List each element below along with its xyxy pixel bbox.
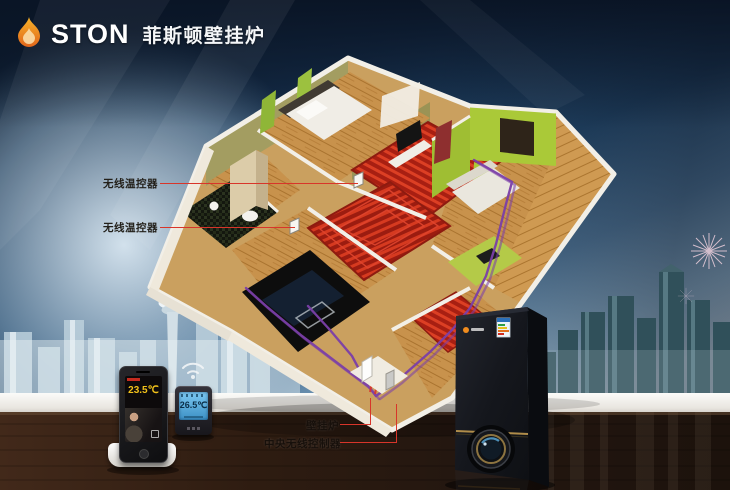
leader-line-3v [370, 398, 371, 425]
flame-icon [14, 16, 44, 52]
phone-app-logo [127, 378, 140, 381]
label-wireless-thermostat-1: 无线温控器 [103, 176, 158, 191]
smartphone-remote: 23.5℃ [119, 366, 168, 463]
label-central-controller: 中央无线控制器 [264, 436, 341, 451]
thermostat-subtext [184, 416, 203, 418]
city-skyline-right [530, 264, 730, 395]
fireworks [678, 233, 727, 304]
leader-line-2 [160, 227, 295, 228]
brand-name: STON [51, 19, 130, 50]
product-name: 菲斯顿壁挂炉 [143, 21, 266, 48]
thermostat-status-icons [181, 394, 206, 397]
boiler-dial [467, 425, 515, 473]
phone-home-button [139, 449, 149, 459]
leader-line-4v [396, 404, 397, 443]
leader-line-3h [340, 424, 371, 425]
phone-screen: 23.5℃ [125, 376, 162, 442]
phone-speaker [136, 371, 150, 373]
poster: STON 菲斯顿壁挂炉 无线温控器 无线温控器 壁挂炉 中央无线控制器 23.5… [0, 0, 730, 490]
wireless-thermostat-device: 26.5℃ [175, 386, 212, 435]
thermostat-buttons [187, 427, 200, 430]
scene [0, 0, 730, 490]
label-wireless-thermostat-2: 无线温控器 [103, 220, 158, 235]
brand-logo: STON 菲斯顿壁挂炉 [14, 16, 266, 52]
energy-label [497, 318, 510, 337]
boiler-unit [445, 307, 555, 490]
label-wall-boiler: 壁挂炉 [306, 418, 339, 433]
wifi-icon [176, 356, 210, 382]
phone-temperature-readout: 23.5℃ [125, 385, 162, 396]
phone-app-icon [151, 430, 159, 438]
mini-controller [386, 370, 394, 390]
thermostat-screen: 26.5℃ [179, 392, 208, 420]
thermostat-temperature-readout: 26.5℃ [179, 400, 208, 411]
leader-line-4h [340, 442, 397, 443]
leader-line-1 [160, 183, 358, 184]
